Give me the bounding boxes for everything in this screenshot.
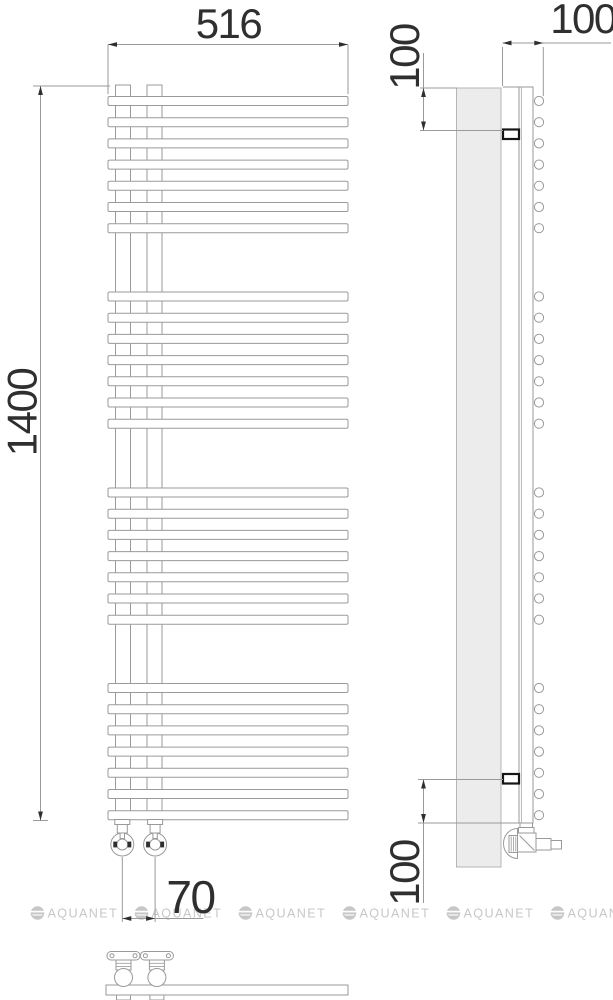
plate-hole [110,954,114,958]
technical-drawing-page: AQUANETAQUANETAQUANETAQUANETAQUANETAQUAN… [0,0,613,1000]
towel-bar [108,811,348,820]
bar-end-circle [534,747,543,756]
bar-end-circle [534,139,543,148]
dimension-arrow [38,812,43,821]
watermark: AQUANET [238,906,326,920]
towel-bar [108,419,348,428]
plate-hole [143,954,147,958]
towel-bar [108,684,348,693]
logo-stripe [134,911,149,913]
logo-stripe [550,911,565,913]
bar-end-circle [534,768,543,777]
towel-bar [108,398,348,407]
aquanet-logo-icon [447,906,461,920]
bottom-view [106,952,348,1000]
towel-bar [108,768,348,777]
towel-bar [108,334,348,343]
bar-end-circle [534,530,543,539]
towel-bar [108,181,348,190]
valve-knob [115,969,133,987]
plate-hole [166,954,170,958]
towel-bar [108,356,348,365]
valve-stem [117,825,127,834]
logo-stripe [137,914,147,915]
towel-bar [108,488,348,497]
dimension-arrow [38,86,43,95]
valve-collar [115,820,130,825]
dimension-arrow [421,122,426,131]
dimension-arrow [421,814,426,823]
wall-bracket [503,130,519,140]
valve-stub [117,995,131,1000]
bar-end-circle [534,726,543,735]
valve-knob [148,969,166,987]
bar-end-circle [534,334,543,343]
towel-bar [108,97,348,106]
watermark-text: AQUANET [48,907,119,921]
towel-bar [108,552,348,561]
valve-front [111,820,134,857]
logo-stripe [446,911,461,913]
valve-neck [153,833,157,839]
towel-bar [108,530,348,539]
watermark: AQUANET [550,906,613,920]
towel-bar [108,377,348,386]
watermark: AQUANET [342,906,430,920]
towel-bar [108,705,348,714]
valve-inner-circle [117,839,128,850]
dimension-arrow [108,42,117,47]
bar-end-circle [534,683,543,692]
bar-end-circle [534,705,543,714]
bottom-rail [106,985,348,995]
watermark-text: AQUANET [360,907,431,921]
valve-nut [146,842,150,848]
bar-end-circle [534,488,543,497]
bar-end-circle [534,594,543,603]
towel-bar [108,615,348,624]
towel-bar [108,790,348,799]
bar-end-circle [534,96,543,105]
valve-stub [150,995,164,1000]
dimension-arrow [503,41,512,46]
logo-stripe [342,911,357,913]
dim-wall-depth-label: 100 [550,0,613,42]
bar-end-circle [534,573,543,582]
towel-bar [108,747,348,756]
dimension-arrow [339,42,348,47]
bar-end-circle [534,202,543,211]
towel-bar [108,118,348,127]
bar-end-circle [534,509,543,518]
watermark-row: AQUANETAQUANETAQUANETAQUANETAQUANETAQUAN… [30,906,613,920]
valve-collar [520,823,533,828]
dim-top-bracket-offset-label: 100 [381,24,428,90]
watermark-text: AQUANET [568,907,613,921]
dim-width-label: 516 [196,0,262,47]
logo-stripe [553,914,563,915]
aquanet-logo-icon [239,906,253,920]
valve-flange [519,828,535,834]
bar-end-circle [534,398,543,407]
valve-spout-end [551,841,562,850]
bar-end-circle [534,789,543,798]
towel-bar [108,139,348,148]
watermark: AQUANET [446,906,534,920]
dimension-arrow [122,916,131,921]
plate-hole [133,954,137,958]
bar-end-circle [534,313,543,322]
towel-bar [108,203,348,212]
dim-height-label: 1400 [0,369,46,457]
bar-end-circle [534,419,543,428]
valve-front [144,820,167,857]
front-view [108,85,348,856]
bar-end-circle [534,377,543,386]
towel-bar [108,313,348,322]
watermark-text: AQUANET [256,907,327,921]
towel-bar [108,509,348,518]
bar-end-circle [534,356,543,365]
dimension-arrow [421,780,426,789]
towel-bar [108,292,348,301]
watermark-text: AQUANET [464,907,535,921]
towel-bar [108,594,348,603]
valve-inner-circle [150,839,161,850]
logo-stripe [238,911,253,913]
valve-nut [113,842,117,848]
dimension-arrow [534,41,543,46]
watermark: AQUANET [30,906,118,920]
logo-stripe [345,914,355,915]
dim-valve-spacing-label: 70 [166,871,214,923]
valve-side [504,823,562,859]
bar-end-circle [534,552,543,561]
aquanet-logo-icon [551,906,565,920]
towel-bar [108,160,348,169]
logo-stripe [449,914,459,915]
wall-bracket [503,774,519,784]
valve-nut [160,842,164,848]
bar-end-circle [534,811,543,820]
valve-collar [148,820,163,825]
towel-radiator-drawing: AQUANETAQUANETAQUANETAQUANETAQUANETAQUAN… [0,0,613,1000]
valve-neck [120,833,124,839]
bar-end-circle [534,181,543,190]
valve-nut [128,842,132,848]
aquanet-logo-icon [343,906,357,920]
towel-bar [108,573,348,582]
side-view [457,87,562,867]
dim-bottom-bracket-offset-label: 100 [381,840,428,906]
bar-end-circle [534,615,543,624]
bar-end-circle [534,224,543,233]
towel-bar [108,224,348,233]
towel-bar [108,726,348,735]
valve-spout [536,839,551,851]
bar-end-circle [534,160,543,169]
aquanet-logo-icon [31,906,45,920]
bar-end-circle [534,118,543,127]
logo-stripe [30,911,45,913]
valve-stem [150,825,160,834]
wall-panel [457,88,502,867]
bar-end-circle [534,292,543,301]
logo-stripe [241,914,251,915]
logo-stripe [33,914,43,915]
